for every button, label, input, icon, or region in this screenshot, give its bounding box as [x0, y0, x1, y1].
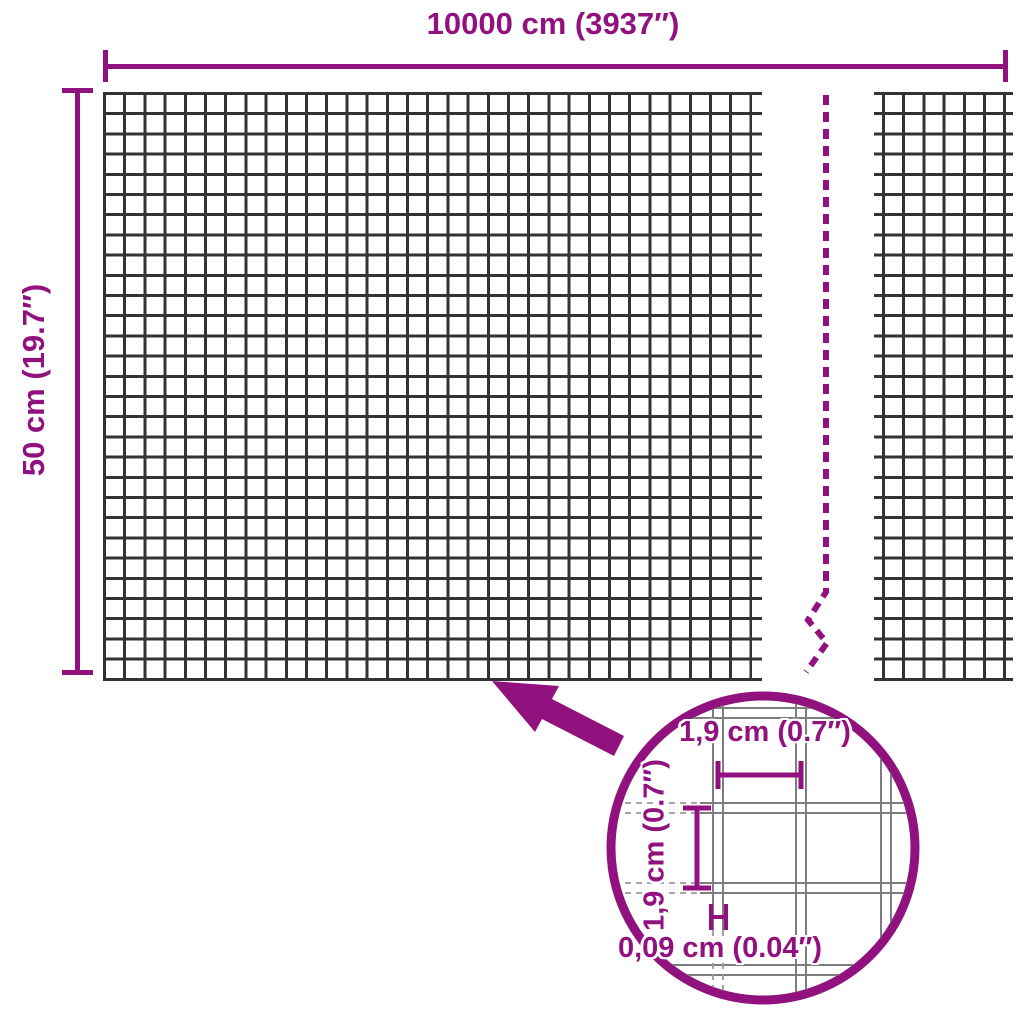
diagram-overlay — [0, 0, 1024, 1024]
break-line-icon — [806, 95, 827, 672]
mesh-width-label: 1,9 cm (0.7″) — [679, 716, 851, 749]
zoom-arrow-icon — [492, 681, 624, 756]
mesh-height-label: 1,9 cm (0.7″) — [639, 759, 672, 931]
product-dimension-diagram: 10000 cm (3937″) 50 cm (19.7″) — [0, 0, 1024, 1024]
wire-thickness-label: 0,09 cm (0.04″) — [618, 932, 822, 965]
